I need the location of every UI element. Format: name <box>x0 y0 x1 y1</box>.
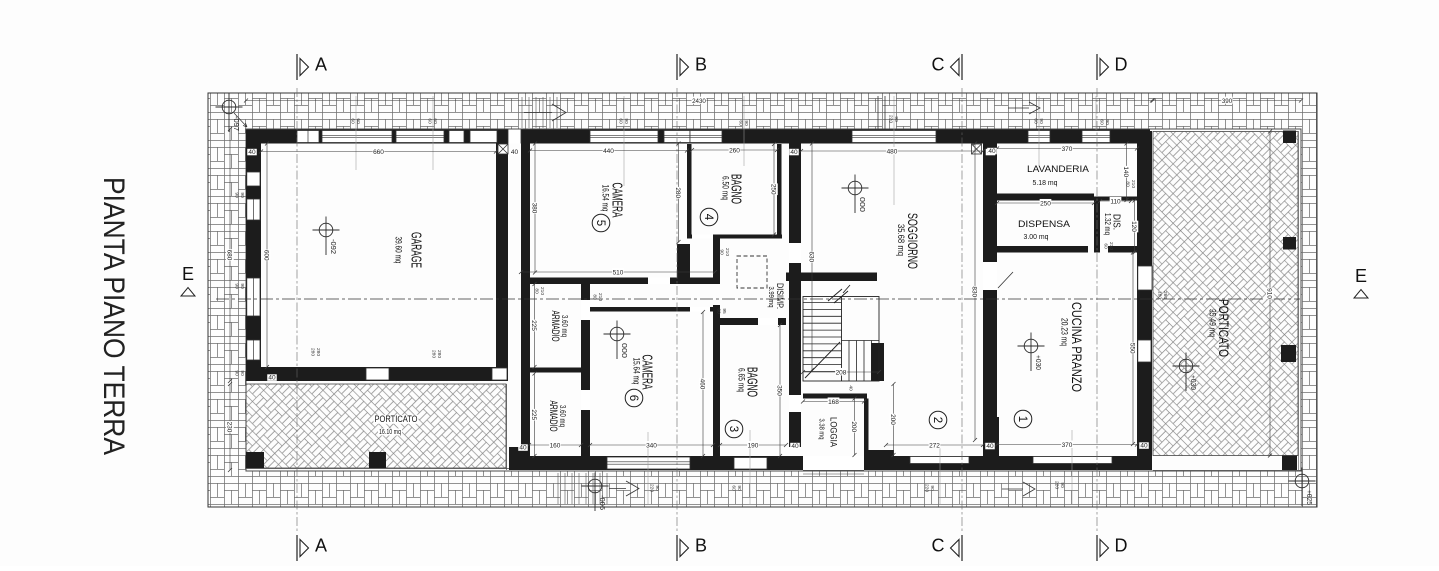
svg-text:830: 830 <box>971 286 978 297</box>
svg-text:-005: -005 <box>598 495 607 510</box>
svg-text:C: C <box>932 535 945 555</box>
svg-text:210: 210 <box>539 287 545 295</box>
svg-text:480: 480 <box>887 148 898 155</box>
svg-text:-097: -097 <box>232 116 241 131</box>
svg-text:210: 210 <box>1130 180 1136 188</box>
svg-text:60: 60 <box>1099 119 1105 125</box>
svg-text:200: 200 <box>850 421 857 432</box>
svg-text:60: 60 <box>716 308 722 314</box>
svg-text:90: 90 <box>234 192 240 198</box>
svg-text:35.68 mq: 35.68 mq <box>896 224 906 256</box>
svg-text:40: 40 <box>790 149 798 156</box>
svg-text:+030: +030 <box>1034 355 1043 370</box>
svg-text:DISPENSA: DISPENSA <box>1018 219 1071 230</box>
svg-text:16.54 mq: 16.54 mq <box>600 185 611 212</box>
svg-text:40: 40 <box>988 148 996 155</box>
svg-text:210: 210 <box>597 293 603 301</box>
svg-text:D: D <box>1115 54 1128 74</box>
svg-text:280: 280 <box>436 350 442 358</box>
svg-text:+025: +025 <box>1305 490 1314 505</box>
svg-text:260: 260 <box>1162 291 1168 299</box>
svg-text:350: 350 <box>776 385 783 396</box>
svg-text:6.50 mq: 6.50 mq <box>720 176 731 200</box>
svg-text:340: 340 <box>646 442 657 449</box>
svg-text:PIANTA PIANO TERRA: PIANTA PIANO TERRA <box>97 177 130 455</box>
svg-text:220: 220 <box>649 484 655 492</box>
svg-text:60: 60 <box>618 118 624 124</box>
svg-text:220: 220 <box>924 484 930 492</box>
svg-text:510: 510 <box>613 269 624 276</box>
svg-text:90: 90 <box>743 120 749 126</box>
svg-text:PORTICATO: PORTICATO <box>375 414 418 424</box>
svg-text:80: 80 <box>1125 181 1131 187</box>
svg-text:680: 680 <box>226 250 233 261</box>
svg-text:260: 260 <box>729 147 740 154</box>
svg-text:60: 60 <box>432 118 438 124</box>
svg-text:550: 550 <box>1129 343 1136 354</box>
svg-text:90: 90 <box>234 283 240 289</box>
svg-text:90: 90 <box>239 283 245 289</box>
svg-text:3.00 mq: 3.00 mq <box>1024 232 1049 241</box>
svg-text:+030: +030 <box>1189 375 1198 390</box>
svg-text:660: 660 <box>373 149 384 156</box>
svg-text:60: 60 <box>1033 118 1039 124</box>
svg-text:140: 140 <box>1122 166 1129 177</box>
svg-text:230: 230 <box>226 422 233 433</box>
svg-text:225: 225 <box>530 409 537 420</box>
svg-text:ARMADIO: ARMADIO <box>549 311 561 342</box>
svg-text:3: 3 <box>727 426 739 432</box>
svg-text:3.60 mq: 3.60 mq <box>560 315 570 337</box>
svg-text:6.65 mq: 6.65 mq <box>736 368 747 392</box>
svg-text:80: 80 <box>534 288 540 294</box>
svg-text:16.10 mq: 16.10 mq <box>379 429 401 436</box>
svg-text:600: 600 <box>263 250 270 261</box>
svg-text:380: 380 <box>531 203 538 214</box>
svg-text:80: 80 <box>592 294 598 300</box>
svg-text:90: 90 <box>623 118 629 124</box>
svg-text:000: 000 <box>858 197 867 212</box>
svg-text:90: 90 <box>929 485 935 491</box>
svg-text:2: 2 <box>931 417 943 423</box>
svg-text:6: 6 <box>627 395 639 401</box>
svg-text:220: 220 <box>1054 481 1060 489</box>
svg-text:280: 280 <box>431 350 437 358</box>
svg-text:60: 60 <box>738 120 744 126</box>
svg-text:90: 90 <box>1059 482 1065 488</box>
svg-text:280: 280 <box>674 187 681 198</box>
svg-text:40: 40 <box>268 375 276 382</box>
svg-text:39.60 mq: 39.60 mq <box>393 237 404 264</box>
svg-text:90: 90 <box>1038 118 1044 124</box>
svg-text:370: 370 <box>1062 146 1073 153</box>
svg-text:C: C <box>932 54 945 74</box>
svg-text:90: 90 <box>654 485 660 491</box>
svg-text:250: 250 <box>1040 200 1051 207</box>
svg-text:220: 220 <box>888 115 894 123</box>
svg-text:280: 280 <box>310 348 316 356</box>
svg-text:390: 390 <box>1222 98 1233 105</box>
svg-text:190: 190 <box>748 442 759 449</box>
svg-text:90: 90 <box>719 249 725 255</box>
svg-text:90: 90 <box>736 485 742 491</box>
svg-text:440: 440 <box>603 148 614 155</box>
svg-text:ARMADIO: ARMADIO <box>547 401 559 432</box>
svg-text:168: 168 <box>828 399 839 406</box>
svg-text:208: 208 <box>836 369 847 376</box>
svg-text:40: 40 <box>248 149 256 156</box>
svg-text:120: 120 <box>1130 221 1137 232</box>
svg-text:20.23 mq: 20.23 mq <box>1059 318 1070 346</box>
svg-text:15.64 mq: 15.64 mq <box>631 358 642 385</box>
svg-text:40: 40 <box>791 443 799 450</box>
svg-text:60: 60 <box>427 118 433 124</box>
svg-text:110: 110 <box>1110 198 1121 205</box>
svg-text:40: 40 <box>848 385 854 391</box>
svg-text:B: B <box>695 54 707 74</box>
svg-text:90: 90 <box>239 192 245 198</box>
svg-text:180: 180 <box>1157 291 1163 299</box>
svg-text:910: 910 <box>1266 288 1273 299</box>
svg-text:95: 95 <box>721 308 727 314</box>
svg-text:000: 000 <box>620 343 629 358</box>
svg-text:225: 225 <box>530 320 537 331</box>
svg-text:90: 90 <box>1104 119 1110 125</box>
svg-text:B: B <box>695 535 707 555</box>
svg-text:1.32 mq: 1.32 mq <box>1103 213 1112 235</box>
svg-text:460: 460 <box>699 379 706 390</box>
svg-text:E: E <box>182 264 194 284</box>
svg-text:CUCINA PRANZO: CUCINA PRANZO <box>1069 302 1084 392</box>
svg-text:-092: -092 <box>329 239 338 254</box>
svg-text:210: 210 <box>1108 242 1114 250</box>
svg-text:90: 90 <box>239 370 245 376</box>
svg-text:40: 40 <box>986 443 994 450</box>
svg-text:210: 210 <box>724 248 730 256</box>
svg-text:370: 370 <box>1062 442 1073 449</box>
svg-text:A: A <box>315 535 327 555</box>
svg-text:3.99 mq: 3.99 mq <box>767 287 776 308</box>
svg-text:E: E <box>1355 266 1367 286</box>
svg-text:5: 5 <box>594 220 606 226</box>
svg-text:630: 630 <box>808 251 815 262</box>
svg-text:90: 90 <box>893 116 899 122</box>
svg-text:160: 160 <box>550 442 561 449</box>
svg-text:250: 250 <box>770 184 777 195</box>
svg-text:35.49 mq: 35.49 mq <box>1207 309 1218 337</box>
svg-text:60: 60 <box>355 118 361 124</box>
svg-text:40: 40 <box>511 149 519 156</box>
svg-text:2430: 2430 <box>692 98 706 105</box>
svg-text:GARAGE: GARAGE <box>408 232 425 268</box>
svg-text:40: 40 <box>1140 443 1148 450</box>
svg-text:4: 4 <box>702 214 714 221</box>
svg-text:5.18 mq: 5.18 mq <box>1033 178 1058 187</box>
svg-text:280: 280 <box>315 348 321 356</box>
svg-text:3.60 mq: 3.60 mq <box>558 405 568 427</box>
svg-text:90: 90 <box>234 370 240 376</box>
svg-text:3.38 mq: 3.38 mq <box>817 419 826 440</box>
svg-text:LAVANDERIA: LAVANDERIA <box>1027 164 1090 175</box>
svg-text:60: 60 <box>731 485 737 491</box>
svg-text:60: 60 <box>350 118 356 124</box>
svg-text:1: 1 <box>1016 416 1028 422</box>
svg-text:LOGGIA: LOGGIA <box>828 417 839 448</box>
svg-text:272: 272 <box>929 442 940 449</box>
svg-text:40: 40 <box>519 445 527 452</box>
svg-text:D: D <box>1115 535 1128 555</box>
svg-text:200: 200 <box>889 414 896 425</box>
svg-text:60: 60 <box>1103 243 1109 249</box>
svg-text:A: A <box>315 54 327 74</box>
svg-text:SOGGIORNO: SOGGIORNO <box>905 213 920 269</box>
